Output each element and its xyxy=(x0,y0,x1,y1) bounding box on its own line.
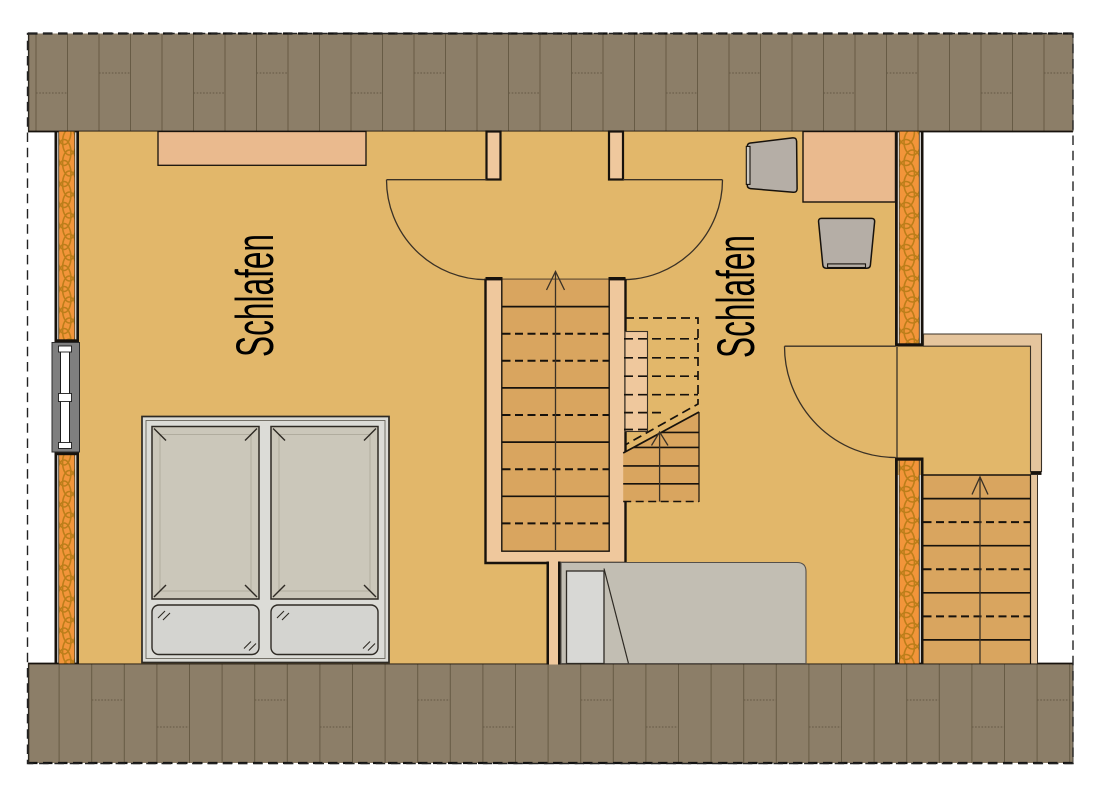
svg-text:Schlafen: Schlafen xyxy=(226,234,285,357)
svg-text:Schlafen: Schlafen xyxy=(707,235,766,358)
